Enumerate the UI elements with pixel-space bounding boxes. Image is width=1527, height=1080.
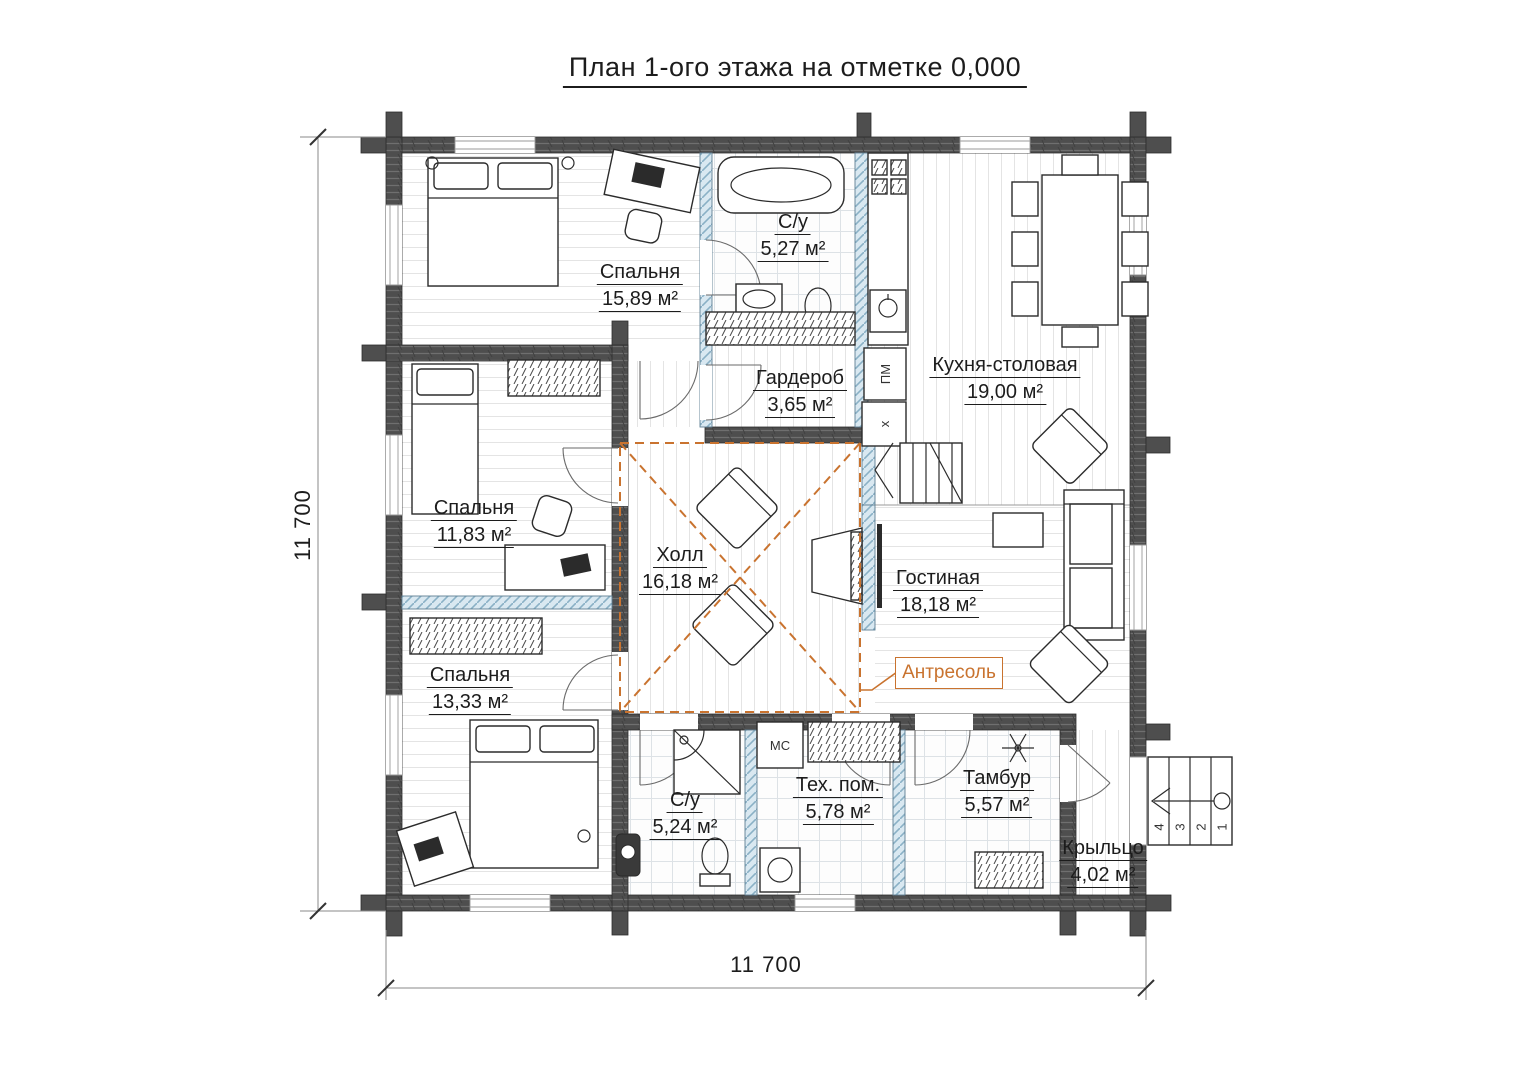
- drawing-title: План 1-ого этажа на отметке 0,000: [563, 52, 1027, 88]
- room-label-porch: Крыльцо 4,02 м²: [1059, 838, 1147, 888]
- fridge-label: х: [862, 402, 906, 446]
- dimension-bottom: 11 700: [730, 952, 802, 978]
- room-label-bedroom-1: Спальня 15,89 м²: [597, 262, 683, 312]
- room-area: 4,02 м²: [1068, 865, 1139, 888]
- room-area: 11,83 м²: [434, 525, 515, 548]
- floor-plan-canvas: План 1-ого этажа на отметке 0,000 Спальн…: [0, 0, 1527, 1080]
- room-name: Спальня: [431, 498, 517, 521]
- room-area: 3,65 м²: [765, 395, 836, 418]
- floor-plan-drawing: [0, 0, 1527, 1080]
- room-label-tech-room: Тех. пом. 5,78 м²: [793, 775, 883, 825]
- room-label-kitchen-dining: Кухня-столовая 19,00 м²: [929, 355, 1080, 405]
- room-area: 15,89 м²: [599, 289, 681, 312]
- room-area: 5,57 м²: [962, 795, 1033, 818]
- room-label-hall: Холл 16,18 м²: [639, 545, 721, 595]
- room-name: Спальня: [427, 665, 513, 688]
- room-label-bedroom-2: Спальня 11,83 м²: [431, 498, 517, 548]
- room-name: Спальня: [597, 262, 683, 285]
- room-label-bedroom-3: Спальня 13,33 м²: [427, 665, 513, 715]
- dimension-left: 11 700: [290, 475, 316, 575]
- room-name: С/у: [667, 790, 703, 813]
- room-area: 19,00 м²: [964, 382, 1046, 405]
- room-name: С/у: [775, 212, 811, 235]
- room-name: Кухня-столовая: [929, 355, 1080, 378]
- room-label-bathroom-2: С/у 5,24 м²: [650, 790, 721, 840]
- room-area: 5,78 м²: [803, 802, 874, 825]
- room-name: Тех. пом.: [793, 775, 883, 798]
- room-label-wardrobe: Гардероб 3,65 м²: [753, 368, 847, 418]
- room-label-bathroom-1: С/у 5,27 м²: [758, 212, 829, 262]
- mezzanine-callout: Антресоль: [895, 657, 1003, 689]
- room-area: 13,33 м²: [429, 692, 511, 715]
- room-name: Крыльцо: [1059, 838, 1147, 861]
- washing-machine-label: МС: [757, 722, 803, 768]
- room-area: 18,18 м²: [897, 595, 979, 618]
- room-area: 16,18 м²: [639, 572, 721, 595]
- room-area: 5,27 м²: [758, 239, 829, 262]
- mezzanine-callout-label: Антресоль: [902, 662, 996, 684]
- porch-step-1: 1: [1207, 817, 1237, 838]
- room-label-living-room: Гостиная 18,18 м²: [893, 568, 983, 618]
- room-label-vestibule: Тамбур 5,57 м²: [960, 768, 1034, 818]
- room-name: Тамбур: [960, 768, 1034, 791]
- room-area: 5,24 м²: [650, 817, 721, 840]
- room-name: Гостиная: [893, 568, 983, 591]
- room-name: Гардероб: [753, 368, 847, 391]
- room-name: Холл: [653, 545, 706, 568]
- dishwasher-label: ПМ: [859, 353, 911, 395]
